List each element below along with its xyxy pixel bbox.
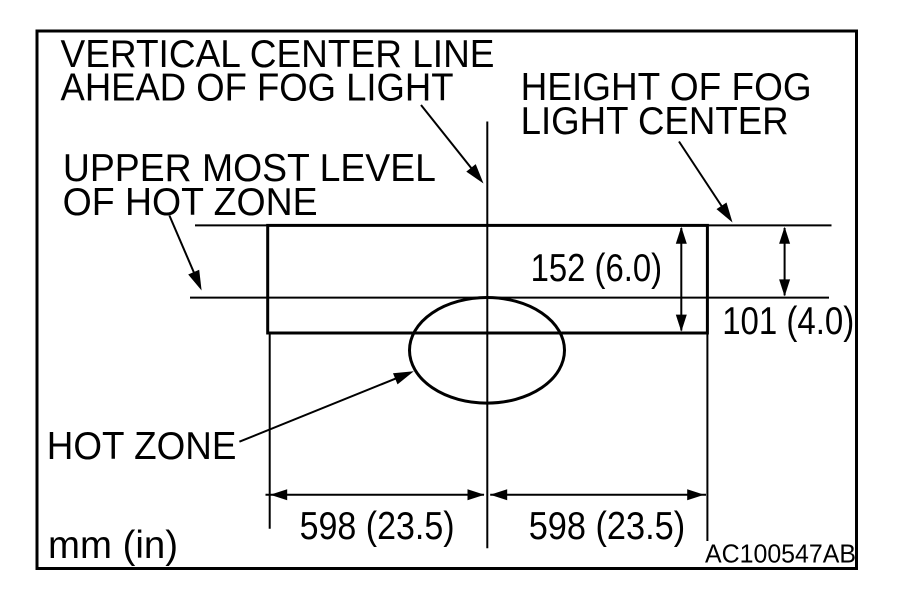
svg-text:101 (4.0): 101 (4.0) bbox=[722, 300, 854, 343]
svg-text:HOT ZONE: HOT ZONE bbox=[47, 425, 237, 468]
svg-text:598 (23.5): 598 (23.5) bbox=[529, 505, 686, 548]
svg-text:598 (23.5): 598 (23.5) bbox=[300, 505, 455, 548]
svg-text:LIGHT CENTER: LIGHT CENTER bbox=[521, 100, 789, 143]
svg-text:OF HOT ZONE: OF HOT ZONE bbox=[63, 181, 318, 224]
svg-text:AHEAD OF FOG LIGHT: AHEAD OF FOG LIGHT bbox=[61, 67, 454, 110]
svg-text:152 (6.0): 152 (6.0) bbox=[531, 247, 663, 290]
svg-text:AC100547AB: AC100547AB bbox=[705, 539, 856, 569]
svg-text:mm (in): mm (in) bbox=[48, 524, 178, 567]
